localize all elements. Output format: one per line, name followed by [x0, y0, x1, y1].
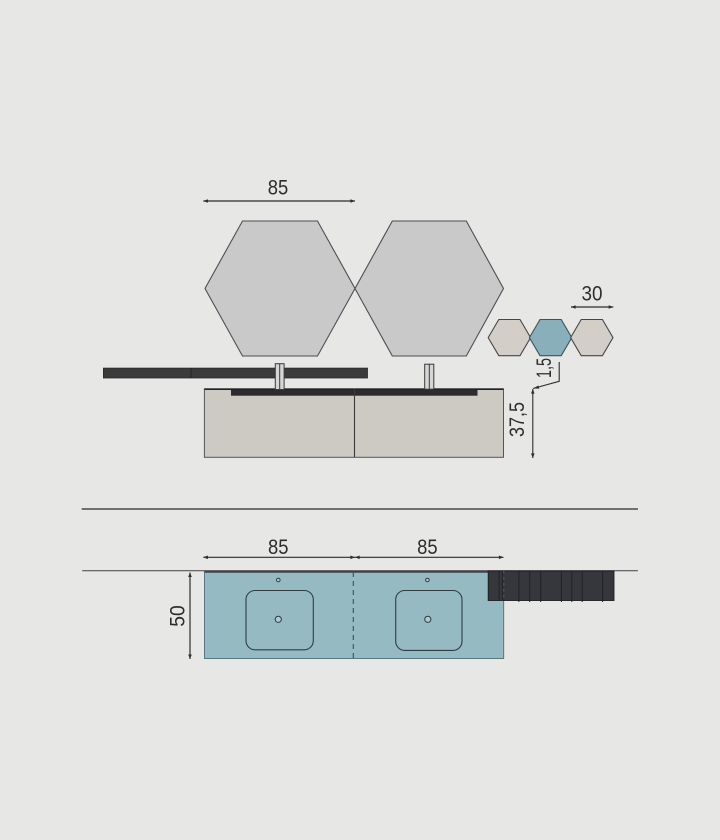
svg-text:37,5: 37,5: [506, 402, 529, 437]
svg-text:85: 85: [268, 176, 289, 199]
svg-text:30: 30: [582, 282, 603, 305]
svg-text:85: 85: [417, 536, 438, 559]
svg-text:85: 85: [268, 536, 289, 559]
svg-text:1,5: 1,5: [533, 358, 556, 378]
svg-text:50: 50: [167, 605, 190, 627]
